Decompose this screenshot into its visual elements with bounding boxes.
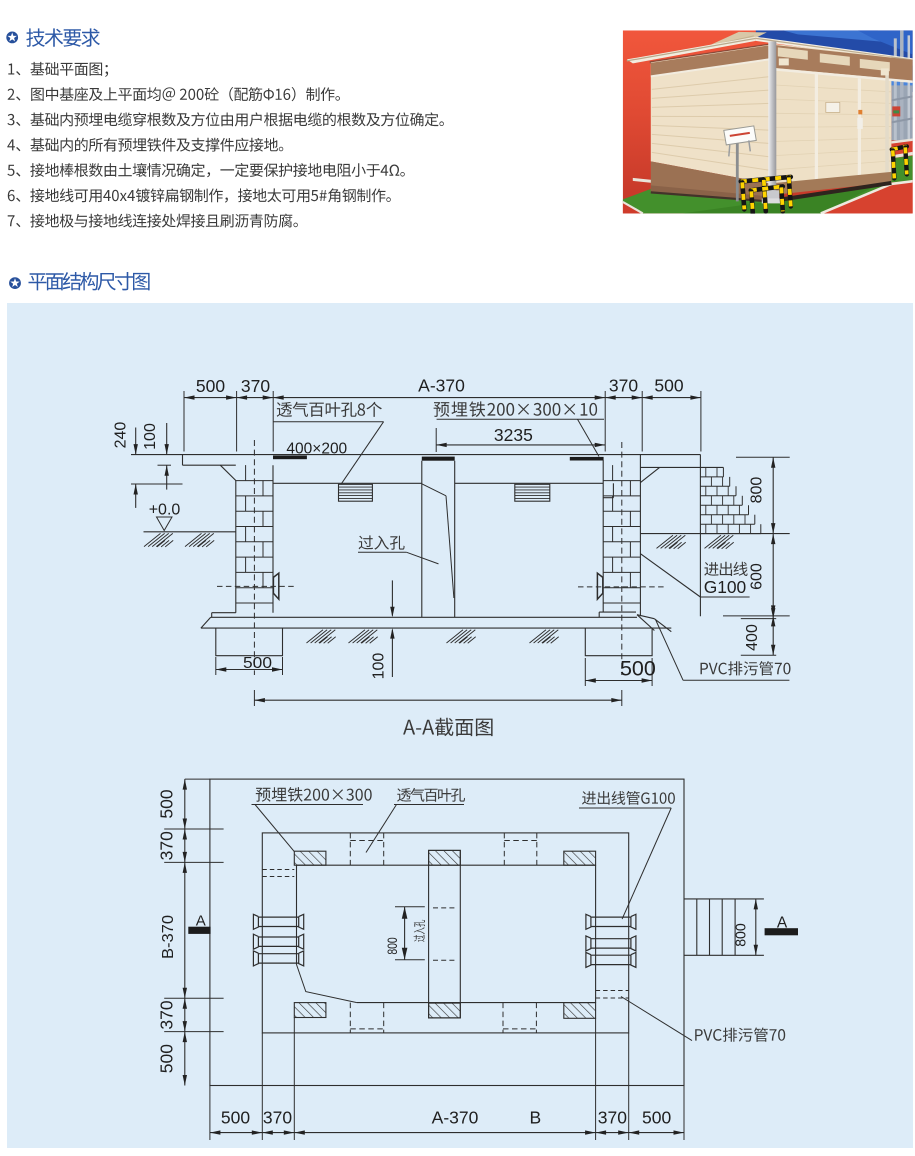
svg-text:500: 500 xyxy=(642,1108,671,1128)
svg-text:600: 600 xyxy=(749,563,766,590)
svg-text:400×200: 400×200 xyxy=(286,440,347,457)
svg-text:500: 500 xyxy=(243,655,272,672)
svg-text:500: 500 xyxy=(157,1044,177,1073)
svg-text:240: 240 xyxy=(112,422,129,449)
svg-text:G100: G100 xyxy=(704,577,747,597)
svg-text:+0.0: +0.0 xyxy=(149,502,181,519)
svg-text:A-370: A-370 xyxy=(432,1108,479,1128)
svg-text:100: 100 xyxy=(371,653,388,680)
svg-text:400: 400 xyxy=(744,624,761,651)
svg-text:800: 800 xyxy=(734,923,750,947)
svg-text:A-370: A-370 xyxy=(418,376,465,396)
svg-text:370: 370 xyxy=(157,1000,177,1029)
svg-text:500: 500 xyxy=(620,656,656,680)
svg-text:100: 100 xyxy=(142,423,159,450)
svg-text:370: 370 xyxy=(241,376,270,396)
svg-text:370: 370 xyxy=(609,376,638,396)
svg-text:500: 500 xyxy=(196,376,225,396)
svg-text:800: 800 xyxy=(384,937,400,954)
svg-text:B-370: B-370 xyxy=(160,915,177,959)
svg-text:370: 370 xyxy=(157,831,177,860)
svg-text:3235: 3235 xyxy=(494,425,533,445)
svg-text:370: 370 xyxy=(598,1108,627,1128)
svg-text:500: 500 xyxy=(221,1108,250,1128)
svg-text:800: 800 xyxy=(749,477,766,504)
svg-text:500: 500 xyxy=(157,789,177,818)
svg-text:370: 370 xyxy=(263,1108,292,1128)
svg-text:B: B xyxy=(530,1108,542,1128)
svg-text:500: 500 xyxy=(654,376,683,396)
